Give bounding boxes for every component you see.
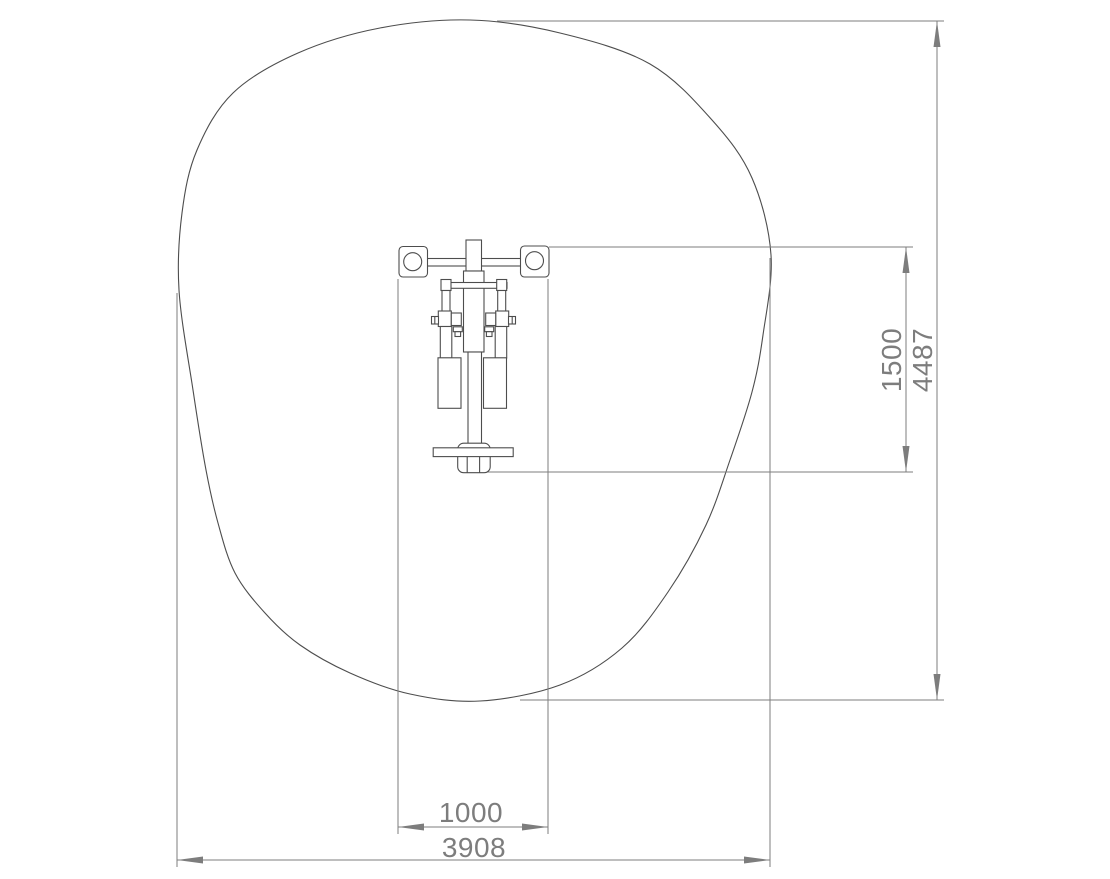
technical-drawing-page: 1000 3908 1500 4487 (0, 0, 1110, 879)
dimension-labels: 1000 3908 1500 4487 (439, 328, 938, 863)
left-handle-post-circle (404, 253, 422, 271)
lower-post (468, 352, 482, 448)
left-hanger-arm (442, 291, 450, 313)
right-swing-arm (495, 327, 507, 359)
dimension-lines (177, 21, 941, 864)
exercise-machine-top-view (399, 240, 549, 473)
base-crossbar (433, 448, 513, 457)
left-pedal (438, 358, 461, 409)
crossbar-left-cap (441, 280, 451, 291)
left-pivot-nut-outer (453, 327, 462, 332)
right-pivot-nut-outer (485, 327, 494, 332)
dimension-label-1000: 1000 (439, 797, 503, 828)
arrow-4487-top (934, 21, 941, 47)
right-pivot-block (496, 311, 509, 327)
arrow-1500-bottom (903, 446, 910, 472)
left-pivot-block (438, 311, 451, 327)
mast-top (466, 240, 482, 271)
arrow-3908-left (177, 857, 203, 864)
crossbar-right-cap (497, 280, 507, 291)
arrow-1500-top (903, 247, 910, 273)
extension-lines (177, 21, 944, 867)
dimension-label-1500: 1500 (876, 328, 907, 392)
right-pivot-plate (486, 313, 496, 326)
right-hanger-arm (498, 291, 506, 313)
arrow-1000-left (398, 824, 424, 831)
technical-drawing-canvas: 1000 3908 1500 4487 (0, 0, 1110, 879)
left-pivot-nut-inner (455, 332, 461, 337)
dimension-label-3908: 3908 (442, 832, 506, 863)
right-pedal (484, 358, 507, 409)
dimension-label-4487: 4487 (907, 328, 938, 392)
arrow-4487-bottom (934, 674, 941, 700)
left-pivot-plate (451, 313, 461, 326)
arrow-3908-right (744, 857, 770, 864)
right-handle-post-circle (526, 252, 544, 270)
arrow-1000-right (522, 824, 548, 831)
left-swing-arm (440, 327, 452, 359)
right-pivot-nut-inner (486, 332, 492, 337)
